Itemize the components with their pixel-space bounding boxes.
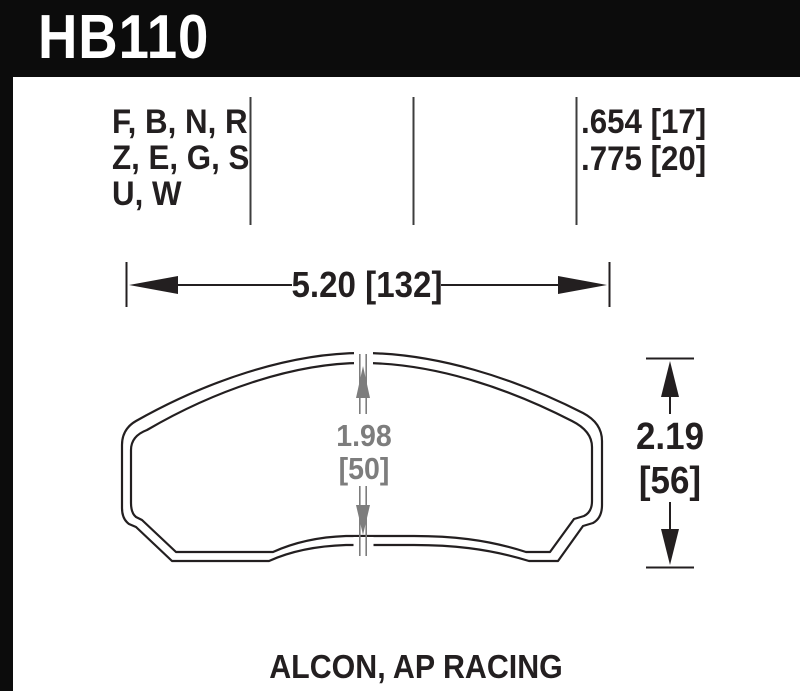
applications-label: ALCON, AP RACING: [269, 649, 562, 685]
outline-gap: [354, 351, 373, 365]
right-arrowhead-icon: [558, 276, 607, 294]
left-arrowhead-icon: [129, 276, 178, 294]
compound-codes-list: F, B, N, R Z, E, G, S U, W: [112, 104, 249, 212]
spec-column-dividers: [251, 97, 577, 225]
compound-line: F, B, N, R: [112, 104, 249, 140]
up-arrowhead-icon: [661, 361, 679, 397]
compound-line: U, W: [112, 176, 249, 212]
width-dimension-label: 5.20 [132]: [292, 266, 443, 304]
center-mm-label: [50]: [336, 452, 392, 485]
brake-pad-spec-sheet: HB110 F, B, N, R Z, E, G, S U, W .654 [1…: [0, 0, 800, 691]
up-arrowhead-icon: [356, 366, 370, 398]
down-arrowhead-icon: [356, 505, 370, 535]
center-dimension-label: 1.98 [50]: [336, 419, 392, 485]
left-edge-rail: [0, 77, 13, 691]
height-inches-label: 2.19: [636, 415, 704, 459]
center-inches-label: 1.98: [336, 419, 392, 452]
down-arrowhead-icon: [661, 529, 679, 565]
compound-line: Z, E, G, S: [112, 140, 249, 176]
part-number-label: HB110: [38, 6, 209, 70]
thickness-line: .654 [17]: [581, 104, 706, 141]
header-bar: HB110: [0, 0, 800, 77]
height-dimension-label: 2.19 [56]: [636, 415, 704, 503]
pad-thickness-values: .654 [17] .775 [20]: [581, 104, 706, 178]
thickness-line: .775 [20]: [581, 141, 706, 178]
outline-gap: [354, 537, 374, 557]
height-mm-label: [56]: [636, 459, 704, 503]
